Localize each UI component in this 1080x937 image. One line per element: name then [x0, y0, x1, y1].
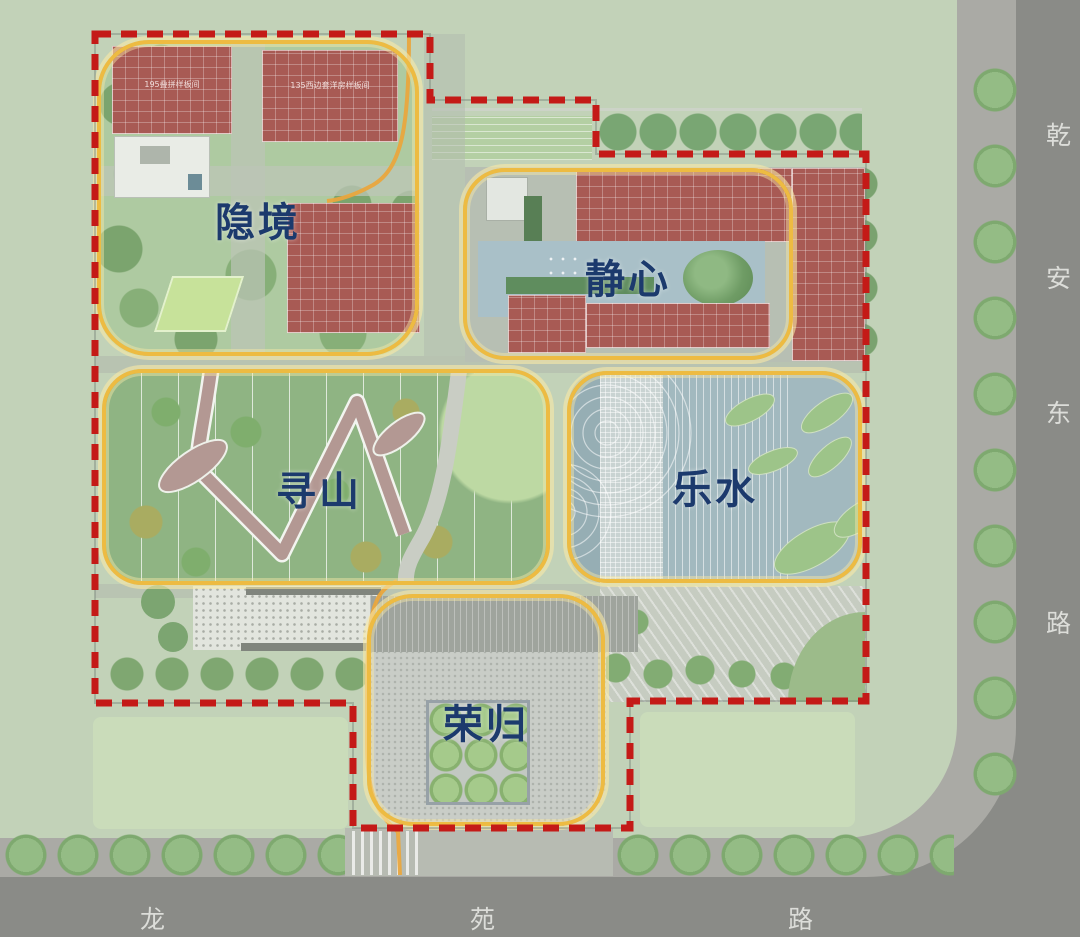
road-label-east-char-3: 东	[1046, 394, 1071, 430]
road-label-east-char-1: 乾	[1046, 116, 1071, 152]
zone-label-yinjing: 隐境	[215, 190, 301, 248]
zone-label-jingxin: 静心	[585, 247, 671, 305]
zone-label-ronggui: 荣归	[443, 692, 529, 750]
road-label-east-char-2: 安	[1046, 259, 1071, 295]
road-label-east-char-4: 路	[1046, 604, 1071, 640]
road-label-south-char-1: 龙	[140, 900, 165, 936]
zone-label-xunshan: 寻山	[276, 459, 362, 517]
site-boundary	[0, 0, 1080, 937]
zone-label-leshui: 乐水	[672, 457, 758, 515]
building-135-label: 135西边套洋房样板间	[268, 80, 392, 91]
building-195-label: 195叠拼样板间	[118, 79, 226, 90]
road-label-south-char-2: 苑	[470, 900, 495, 936]
site-plan: 195叠拼样板间 135西边套洋房样板间 隐境 静心 寻山 乐水 荣归 乾 安 …	[0, 0, 1080, 937]
road-label-south-char-3: 路	[788, 900, 813, 936]
